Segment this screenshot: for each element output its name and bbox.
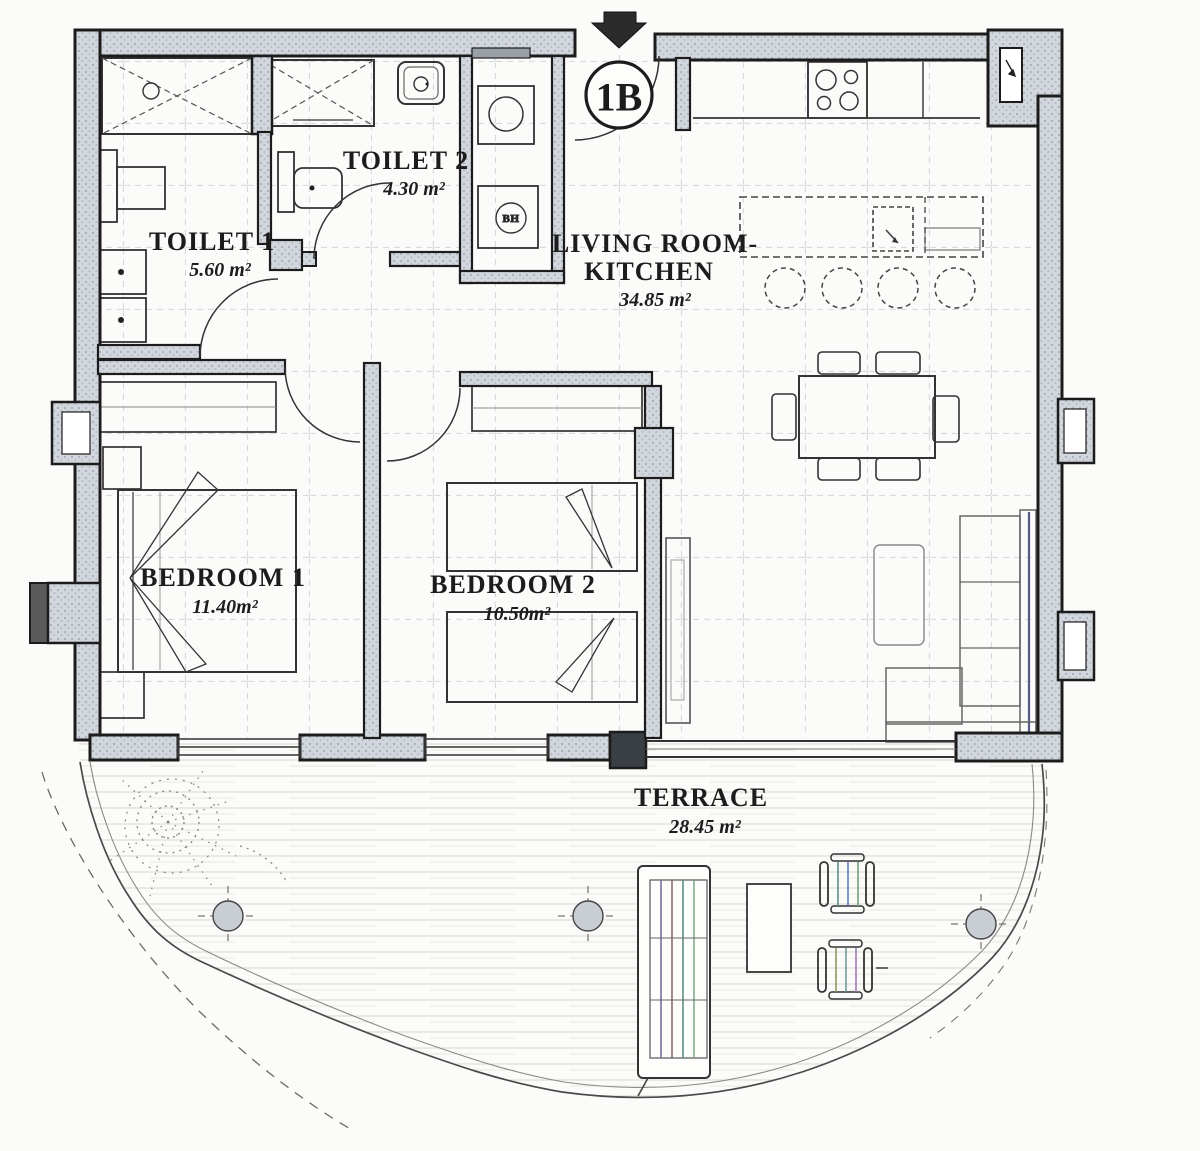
wall-toilet-divider-top [252,56,272,134]
label-living-line1: LIVING ROOM- [552,229,758,258]
label-terrace: TERRACE [634,783,768,812]
area-bedroom2: 10.50m² [484,603,552,625]
wall-bedroom-divider [364,363,380,738]
terrace-deck-hatch [30,735,1090,1145]
terrace-table [747,884,791,972]
label-living-line2: KITCHEN [584,257,714,286]
wall-bottom-3 [548,735,610,760]
wall-toilet2-bottom-b [390,252,460,266]
area-bedroom1: 11.40m² [192,596,258,618]
wall-bottom-2 [300,735,425,760]
wall-top-right [655,34,988,60]
area-toilet1: 5.60 m² [189,259,252,281]
wall-bedroom2-top [460,372,652,386]
water-heater-label: BH [503,213,520,225]
area-toilet2: 4.30 m² [382,178,446,200]
wall-bottom-1 [90,735,178,760]
label-toilet1: TOILET 1 [149,227,275,256]
pillar-right-1-core [1064,409,1086,453]
window-bedroom2 [425,736,548,758]
label-toilet2: TOILET 2 [343,146,469,175]
unit-label: 1B [596,75,643,120]
pillar-bottom-center [610,732,646,768]
label-bedroom1: BEDROOM 1 [140,563,306,592]
closet-lintel [472,48,530,58]
sun-lounger [638,866,710,1096]
floor-plan-page: BH [0,0,1200,1151]
window-bedroom1 [178,736,300,758]
pillar-left-2 [48,583,100,643]
area-terrace: 28.45 m² [668,816,742,838]
terrace-area [30,735,1090,1145]
entrance: 1B [586,12,652,128]
pillar-left-1-core [62,412,90,454]
label-bedroom2: BEDROOM 2 [430,570,596,599]
wall-closet-bottom [460,271,564,283]
wall-bottom-4 [956,733,1062,761]
wall-toilet1-bottom [98,345,200,359]
entrance-arrow-icon [592,12,646,48]
pier-bedroom2 [635,428,673,478]
floor-tile-grid [98,54,1042,738]
floor-plan-drawing: BH [0,0,1200,1151]
area-living: 34.85 m² [618,289,692,311]
wall-kitchen-stub [676,58,690,130]
wall-bedroom1-top [98,360,285,374]
pillar-right-2-core [1064,622,1086,670]
